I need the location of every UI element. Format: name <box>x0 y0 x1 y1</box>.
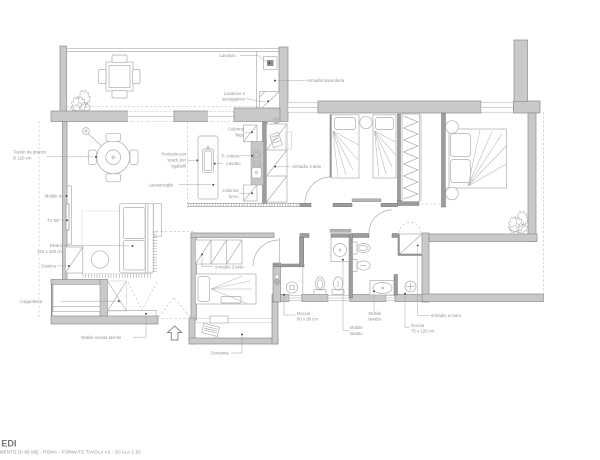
svg-text:Colonna: Colonna <box>222 188 239 193</box>
svg-text:MENTO DI 85 MQ - ROMA - FORMAT: MENTO DI 85 MQ - ROMA - FORMATO TAVOLA A… <box>0 449 141 454</box>
svg-text:snack per: snack per <box>167 157 186 162</box>
svg-text:D 120 cm: D 120 cm <box>13 156 32 161</box>
svg-text:EDI: EDI <box>1 439 16 449</box>
svg-text:Colonna: Colonna <box>228 127 245 132</box>
svg-text:Armadio lavanderia: Armadio lavanderia <box>307 78 345 83</box>
svg-text:Tavolo da pranzo: Tavolo da pranzo <box>13 150 46 155</box>
svg-text:sgabelli: sgabelli <box>171 163 186 168</box>
svg-text:75 x 120 cm: 75 x 120 cm <box>411 329 435 334</box>
svg-text:Armadio a muro: Armadio a muro <box>431 313 462 318</box>
svg-text:Camino: Camino <box>41 264 56 269</box>
svg-text:Lavatoio: Lavatoio <box>220 53 237 58</box>
svg-text:Doccia: Doccia <box>297 311 311 316</box>
svg-text:80 x 95 cm: 80 x 95 cm <box>297 317 318 322</box>
svg-text:Doccia: Doccia <box>411 323 425 328</box>
svg-text:lavabo: lavabo <box>369 317 382 322</box>
svg-text:lavabo: lavabo <box>350 331 363 336</box>
svg-text:Lavastoviglie: Lavastoviglie <box>149 183 174 188</box>
svg-text:Mobile: Mobile <box>369 311 382 316</box>
svg-text:Penisola con: Penisola con <box>161 151 186 156</box>
svg-text:Scrivania: Scrivania <box>211 351 229 356</box>
svg-text:Lavatrice e: Lavatrice e <box>224 91 246 96</box>
svg-text:Lavabo: Lavabo <box>226 161 241 166</box>
svg-text:Armadio 3 ante: Armadio 3 ante <box>215 264 245 269</box>
svg-text:frigo: frigo <box>236 133 245 138</box>
svg-text:TV 55": TV 55" <box>47 218 60 223</box>
svg-text:P. cottura: P. cottura <box>222 153 240 158</box>
svg-text:asciugatrice: asciugatrice <box>222 97 246 102</box>
svg-text:220 x 100 cm: 220 x 100 cm <box>37 249 63 254</box>
svg-text:Mobile: Mobile <box>350 325 363 330</box>
svg-text:forno: forno <box>229 194 239 199</box>
svg-text:Mobile tv: Mobile tv <box>45 194 63 199</box>
svg-text:Divano: Divano <box>50 243 64 248</box>
svg-text:Cappottiera: Cappottiera <box>20 299 43 304</box>
svg-text:Armadio 3 ante: Armadio 3 ante <box>292 164 322 169</box>
svg-text:Mobile svuota tasche: Mobile svuota tasche <box>81 335 122 340</box>
